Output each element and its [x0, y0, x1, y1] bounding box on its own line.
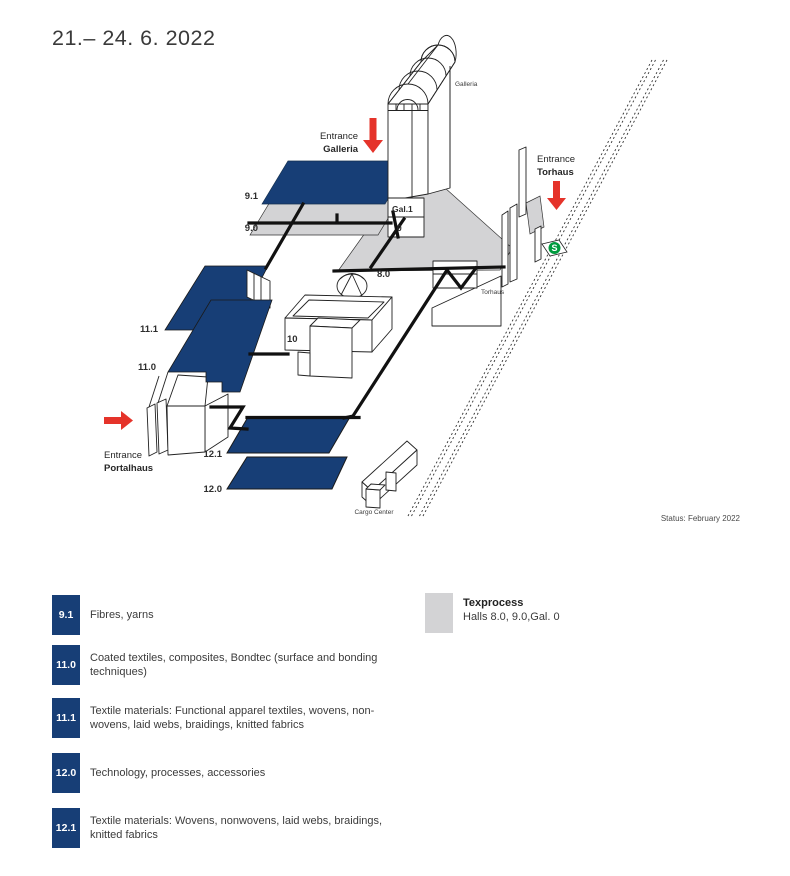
legend-swatch-11-1: 11.1 — [52, 698, 80, 738]
status-text: Status: February 2022 — [661, 514, 741, 523]
hall-12-0-roof — [227, 457, 347, 489]
entrance-galleria-arrow — [363, 118, 383, 153]
label-hall-8-0: 8.0 — [377, 269, 390, 280]
site-map: S 9.1 9.0 Gal.1 0 8.0 10 11.1 11.0 12.1 … — [0, 0, 790, 540]
label-galleria: Galleria — [455, 81, 478, 88]
label-cargo-center: Cargo Center — [354, 509, 394, 516]
legend-item-11-0: 11.0 Coated textiles, composites, Bondte… — [52, 645, 406, 685]
label-torhaus: Torhaus — [481, 289, 505, 296]
label-hall-9-1: 9.1 — [245, 191, 259, 202]
legend-item-12-1: 12.1 Textile materials: Wovens, nonwoven… — [52, 808, 406, 848]
legend-code: 12.0 — [56, 767, 76, 779]
legend-code: 12.1 — [56, 822, 76, 834]
entrance-galleria-label-2: Galleria — [323, 144, 359, 155]
entrance-portalhaus-arrow — [104, 411, 133, 430]
sbahn-sign: S — [542, 240, 567, 256]
entrance-torhaus-label-2: Torhaus — [537, 167, 574, 178]
label-hall-9-0: 9.0 — [245, 223, 258, 234]
legend-text: Textile materials: Functional apparel te… — [90, 704, 406, 732]
legend-texprocess-title: Texprocess — [463, 596, 779, 610]
legend-swatch-11-0: 11.0 — [52, 645, 80, 685]
hall-10-building — [285, 295, 392, 378]
cargo-center-building — [362, 441, 417, 508]
legend-item-texprocess: Texprocess Halls 8.0, 9.0,Gal. 0 — [425, 593, 779, 633]
legend-text: Technology, processes, accessories — [90, 766, 406, 780]
label-hall-12-0: 12.0 — [204, 484, 223, 495]
entrance-torhaus-label-1: Entrance — [537, 154, 575, 165]
label-hall-11-0: 11.0 — [138, 362, 156, 373]
sbahn-letter: S — [551, 243, 557, 253]
legend-item-12-0: 12.0 Technology, processes, accessories — [52, 753, 406, 793]
legend-swatch-12-0: 12.0 — [52, 753, 80, 793]
legend-code: 11.1 — [56, 712, 76, 724]
portalhaus-building — [147, 372, 228, 456]
entrance-torhaus-arrow — [547, 181, 566, 210]
legend-text: Fibres, yarns — [90, 608, 406, 622]
label-hall-11-1: 11.1 — [140, 324, 159, 335]
legend-code: 9.1 — [59, 609, 74, 621]
label-gal-1: Gal.1 — [392, 204, 413, 214]
hall-12-1-roof — [227, 417, 350, 453]
entrance-portalhaus-label-1: Entrance — [104, 450, 142, 461]
entrance-galleria-label-1: Entrance — [320, 131, 358, 142]
entrance-portalhaus-label-2: Portalhaus — [104, 463, 153, 474]
legend-code: 11.0 — [56, 659, 76, 671]
legend-item-11-1: 11.1 Textile materials: Functional appar… — [52, 698, 406, 738]
legend-swatch-12-1: 12.1 — [52, 808, 80, 848]
legend-item-9-1: 9.1 Fibres, yarns — [52, 595, 406, 635]
legend-text: Textile materials: Wovens, nonwovens, la… — [90, 814, 406, 842]
dome-structure — [337, 274, 367, 299]
legend-swatch-texprocess — [425, 593, 453, 633]
legend-texprocess-text: Halls 8.0, 9.0,Gal. 0 — [463, 610, 779, 624]
label-hall-12-1: 12.1 — [204, 449, 223, 460]
legend-swatch-9-1: 9.1 — [52, 595, 80, 635]
label-gal-0: 0 — [397, 223, 402, 233]
label-hall-10: 10 — [287, 334, 298, 345]
legend-text: Coated textiles, composites, Bondtec (su… — [90, 651, 406, 679]
legend-texprocess-block: Texprocess Halls 8.0, 9.0,Gal. 0 — [463, 593, 779, 624]
